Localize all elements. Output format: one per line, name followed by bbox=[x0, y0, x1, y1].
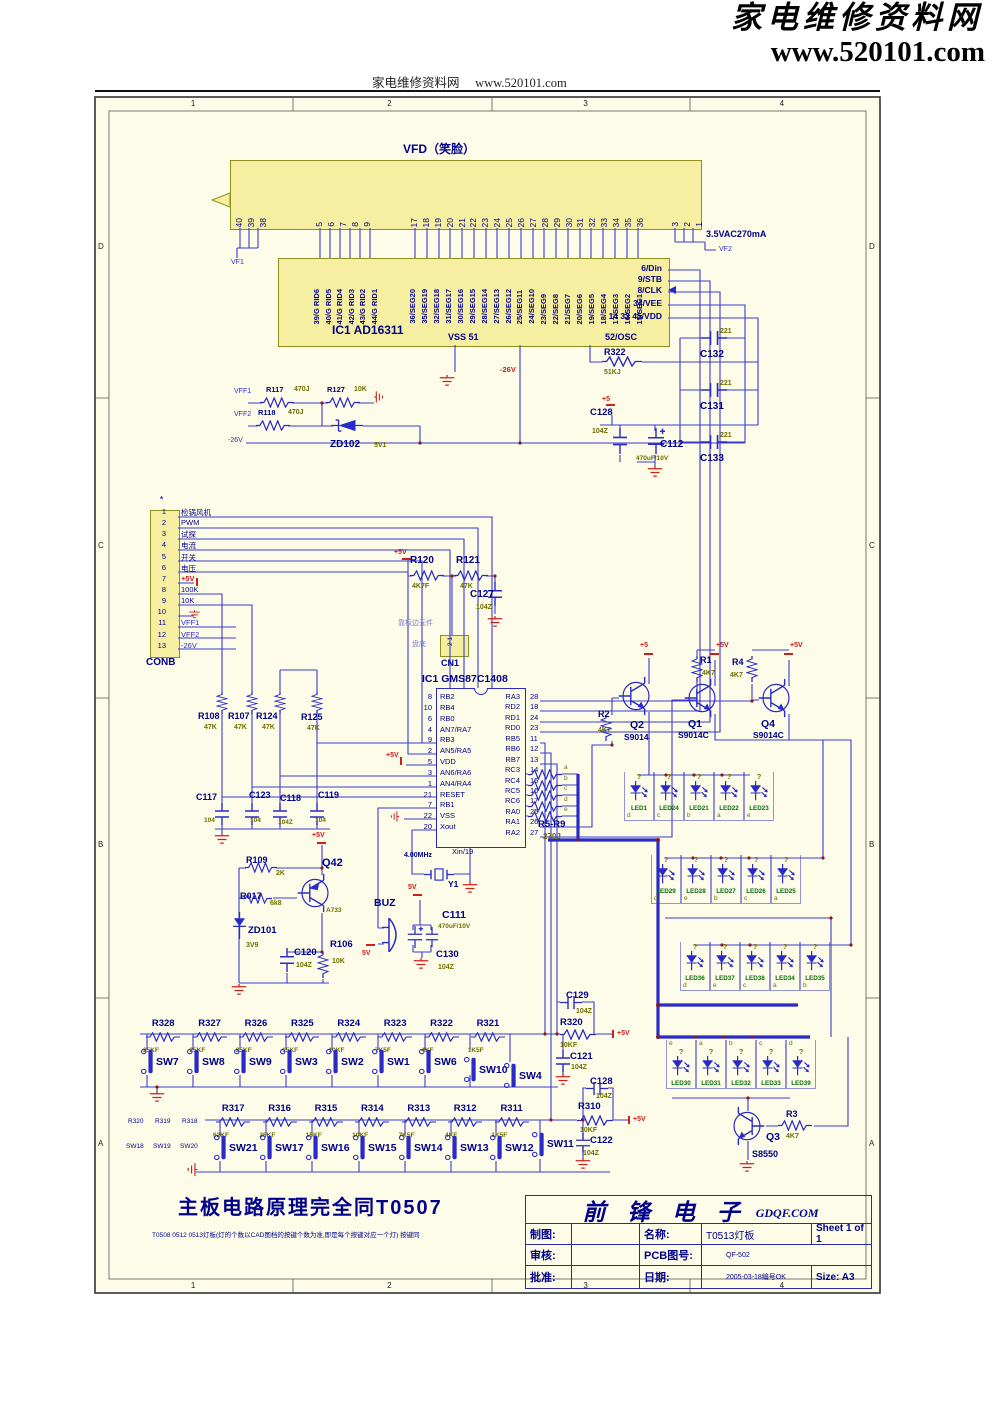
vfd-pin: 17 bbox=[409, 218, 419, 227]
mcu-pin-number: 13 bbox=[530, 755, 550, 765]
switch: SW12 bbox=[489, 1134, 534, 1161]
resistor-R5-R9-value: 270J bbox=[543, 833, 561, 841]
led-segment-letter: a bbox=[774, 895, 778, 902]
led-icon bbox=[774, 951, 796, 975]
mcu-pin-number: 3 bbox=[404, 768, 432, 779]
resistor-ref: R317 bbox=[210, 1103, 256, 1114]
led-cell: ?LED24c bbox=[654, 772, 684, 821]
switch: SW21 bbox=[213, 1134, 258, 1161]
footer-note-sub: T0508 0512 0513灯板(灯的个数以CAD图档的按键个数为准,即是每个… bbox=[152, 1233, 420, 1240]
resistor-ref: R314 bbox=[349, 1103, 395, 1114]
mcu-pin-name: RA2 bbox=[458, 828, 520, 838]
power-bar bbox=[317, 842, 326, 844]
led-cell: ?LED25a bbox=[771, 855, 801, 904]
zener-ZD101 bbox=[233, 912, 246, 939]
resistor-R4-ref: R4 bbox=[732, 658, 744, 667]
footer-note-main: 主板电路原理完全同T0507 bbox=[178, 1198, 443, 1218]
led-row-2: ?LED29d?LED28e?LED27b?LED26c?LED25a bbox=[651, 855, 801, 904]
led-icon bbox=[714, 951, 736, 975]
mcu-pin-number: 18 bbox=[530, 702, 550, 712]
mcu-pin-number: 21 bbox=[404, 790, 432, 801]
schematic-page: 家电维修资料网 www.520101.com 家电维修资料网 www.52010… bbox=[0, 0, 993, 1404]
vfd-pin: 29 bbox=[552, 218, 562, 227]
mcu-pin-number: 8 bbox=[404, 692, 432, 703]
resistor-icon bbox=[402, 1117, 436, 1127]
switch-label: SW1 bbox=[387, 1056, 410, 1068]
led-segment-letter: d bbox=[654, 895, 658, 902]
resistor-R3 bbox=[778, 1120, 812, 1131]
led-mark: ? bbox=[697, 772, 702, 781]
mcu-pin-number: 24 bbox=[530, 713, 550, 723]
mcu-xin-label: Xin/19 bbox=[452, 848, 473, 856]
resistor-R121 bbox=[454, 570, 488, 581]
switch: SW17 bbox=[259, 1134, 304, 1161]
mcu-name: IC1 GMS87C1408 bbox=[422, 674, 508, 685]
transistor-Q4-value: S9014C bbox=[753, 731, 784, 740]
segment-letter: e bbox=[564, 806, 568, 817]
led-icon bbox=[730, 1056, 752, 1080]
vfd-pin: 3 bbox=[670, 222, 680, 227]
resistor-R4-value: 4K7 bbox=[730, 672, 743, 679]
led-mark: ? bbox=[667, 772, 672, 781]
led-segment-letter: d bbox=[789, 1040, 793, 1047]
switch-icon bbox=[140, 1048, 155, 1075]
resistor-ref: R311 bbox=[488, 1103, 534, 1114]
led-mark: ? bbox=[784, 855, 789, 864]
switch-label: SW19 bbox=[153, 1143, 180, 1150]
vfd-pins-left: 403938 bbox=[234, 200, 268, 227]
net-label-vf2: VF2 bbox=[719, 246, 732, 253]
capacitor-C128 bbox=[612, 428, 628, 454]
vfd-pin: 21 bbox=[457, 218, 467, 227]
net-label-plus5v: +5V bbox=[716, 642, 729, 649]
resistor-R106-ref: R106 bbox=[330, 940, 353, 950]
transistor-Q3 bbox=[728, 1106, 766, 1146]
capacitor-C127-value: 104Z bbox=[476, 604, 492, 611]
resistor-R120 bbox=[410, 570, 444, 581]
led-cell: ?LED34a bbox=[770, 942, 800, 991]
capacitor-C119-ref: C119 bbox=[318, 791, 339, 800]
led-cell: ?LED22a bbox=[714, 772, 744, 821]
led-ref: LED36 bbox=[685, 975, 705, 982]
resistor-R108-ref: R108 bbox=[198, 712, 220, 721]
resistor-R118-ref: R118 bbox=[258, 409, 276, 417]
key-switch-row-2: SW21SW17SW16SW15SW14SW13SW12 bbox=[213, 1134, 553, 1174]
checked-by-label: 审核: bbox=[526, 1244, 571, 1265]
mcu-pin-name: RC3 bbox=[458, 765, 520, 775]
name-label: 名称: bbox=[639, 1223, 701, 1244]
company-name: 前 锋 电 子 bbox=[582, 1196, 747, 1223]
resistor-R127-value: 10K bbox=[354, 386, 367, 393]
capacitor-C127-ref: C127 bbox=[470, 590, 494, 600]
net-label-5v: 5V bbox=[362, 950, 371, 957]
led-ref: LED25 bbox=[776, 888, 796, 895]
vfd-pin: 34 bbox=[611, 218, 621, 227]
conb-net-label: 试探 bbox=[181, 529, 211, 540]
mcu-pin-name: RA0 bbox=[458, 807, 520, 817]
led-ref: LED38 bbox=[745, 975, 765, 982]
ground-icon bbox=[148, 1091, 166, 1103]
led-segment-letter: b bbox=[687, 812, 691, 819]
led-segment-letter: e bbox=[684, 895, 688, 902]
resistor-R017 bbox=[242, 893, 272, 904]
led-cell: ?LED21b bbox=[684, 772, 714, 821]
crystal-Y1-value: 4.00MHz bbox=[404, 852, 432, 859]
capacitor-C122-ref: C122 bbox=[590, 1136, 613, 1146]
segment-letter: b bbox=[564, 775, 568, 786]
led-cell: ?LED33c bbox=[756, 1040, 786, 1089]
switch-label: SW3 bbox=[295, 1056, 318, 1068]
capacitor-C121-value: 104Z bbox=[571, 1064, 587, 1071]
ground-icon bbox=[188, 610, 201, 619]
conb-pin-number: 13 bbox=[150, 641, 166, 652]
conb-pin-number: 9 bbox=[150, 596, 166, 607]
power-bar bbox=[784, 653, 793, 655]
led-icon bbox=[688, 781, 710, 805]
switch-label: SW15 bbox=[368, 1142, 397, 1154]
switch: SW16 bbox=[305, 1134, 350, 1161]
switch: SW4 bbox=[503, 1062, 542, 1089]
led-segment-letter: b bbox=[714, 895, 718, 902]
ic1-pin-label: 24/SEG10 bbox=[527, 289, 536, 324]
resistor-icon bbox=[239, 1032, 273, 1042]
led-mark: ? bbox=[783, 942, 788, 951]
switch-icon bbox=[398, 1134, 413, 1161]
ic1-pin-label: 30/SEG16 bbox=[456, 289, 465, 324]
ic1-pin-stb: 9/STB bbox=[560, 275, 662, 284]
crystal-Y1-ref: Y1 bbox=[448, 880, 458, 889]
transistor-Q3-value: S8550 bbox=[752, 1150, 778, 1159]
led-cell: ?LED1d bbox=[624, 772, 654, 821]
segment-letter: d bbox=[564, 796, 568, 807]
conb-pin-number: 8 bbox=[150, 585, 166, 596]
resistor-ref: R313 bbox=[396, 1103, 442, 1114]
ic1-pin-label: 27/SEG13 bbox=[492, 289, 501, 324]
led-icon bbox=[760, 1056, 782, 1080]
company-url: GDQF.COM bbox=[756, 1206, 819, 1221]
resistor-R106-value: 10K bbox=[332, 958, 345, 965]
led-cell: ?LED27b bbox=[711, 855, 741, 904]
resistor-icon bbox=[216, 1117, 250, 1127]
resistor-icon bbox=[425, 1032, 459, 1042]
ic1-pin-vss: VSS 51 bbox=[448, 333, 479, 342]
capacitor-C131-ref: C131 bbox=[700, 402, 724, 412]
led-row-1: ?LED1d?LED24c?LED21b?LED22a?LED23e bbox=[624, 772, 774, 821]
resistor-R5-R9-ref: R5-R9 bbox=[538, 820, 565, 830]
ic1-pin-label: 32/SEG18 bbox=[432, 289, 441, 324]
capacitor-C112-value: 470uF/10V bbox=[636, 456, 668, 463]
cn1-pins: 2 1 bbox=[448, 637, 455, 646]
ic1-grid-pin-labels: 39/G RID640/G RID541/G RID442/G RID343/G… bbox=[312, 262, 379, 324]
vfd-pin: 23 bbox=[480, 218, 490, 227]
resistor-ref: R315 bbox=[303, 1103, 349, 1114]
capacitor-C130-value: 104Z bbox=[438, 964, 454, 971]
resistor-R125-value: 47K bbox=[307, 725, 320, 732]
transistor-Q42-value: A733 bbox=[326, 908, 342, 915]
led-cell: ?LED37e bbox=[710, 942, 740, 991]
mcu-right-pin-names: RA3RD2RD1RD0RB5RB6RB7RC3RC4RC5RC6RA0RA1R… bbox=[458, 692, 520, 838]
led-mark: ? bbox=[727, 772, 732, 781]
capacitor-C129-value: 104Z bbox=[576, 1008, 592, 1015]
capacitor-C123-value: 104 bbox=[250, 818, 261, 825]
capacitor-C119-value: 104 bbox=[315, 818, 326, 825]
led-ref: LED23 bbox=[749, 805, 769, 812]
switch: SW13 bbox=[444, 1134, 489, 1161]
vfd-pin: 2 bbox=[682, 222, 692, 227]
capacitor-C128-ref: C128 bbox=[590, 408, 613, 418]
resistor-R117 bbox=[260, 397, 294, 408]
mcu-pin-number: 23 bbox=[530, 723, 550, 733]
zener-ZD102-ref: ZD102 bbox=[330, 440, 360, 450]
ground-icon bbox=[554, 1074, 572, 1086]
switch-icon bbox=[233, 1048, 248, 1075]
conb-net-label: 电流 bbox=[181, 540, 211, 551]
mcu-pin-name: RB7 bbox=[458, 755, 520, 765]
capacitor-C117-ref: C117 bbox=[196, 793, 217, 802]
resistor-ref: R327 bbox=[186, 1018, 232, 1029]
resistor-icon bbox=[495, 1117, 529, 1127]
switch-label: SW16 bbox=[321, 1142, 350, 1154]
resistor-R2-value: 4K7 bbox=[598, 727, 611, 734]
led-segment-letter: e bbox=[669, 1040, 673, 1047]
net-label-vf1: VF1 bbox=[231, 259, 244, 266]
resistor-ref: R319 bbox=[155, 1118, 182, 1125]
net-label-plus5v: +5V bbox=[617, 1030, 630, 1037]
drawn-by-label: 制图: bbox=[526, 1223, 571, 1244]
led-mark: ? bbox=[769, 1047, 774, 1056]
checked-by-value bbox=[571, 1244, 639, 1265]
led-icon bbox=[685, 864, 707, 888]
capacitor-C128b-value: 104Z bbox=[596, 1093, 612, 1100]
resistor-icon bbox=[378, 1032, 412, 1042]
switch: SW10 bbox=[463, 1056, 508, 1083]
power-bar bbox=[644, 653, 653, 655]
ic1-pin-vee: 34/VEE bbox=[560, 299, 662, 308]
led-ref: LED24 bbox=[659, 805, 679, 812]
resistor-ref: R323 bbox=[372, 1018, 418, 1029]
ground-icon bbox=[213, 833, 231, 845]
led-mark: ? bbox=[723, 942, 728, 951]
mcu-pin-number: 1 bbox=[404, 779, 432, 790]
switch-label: SW21 bbox=[229, 1142, 258, 1154]
conb-net-label: 开关 bbox=[181, 552, 211, 563]
transistor-Q42-ref: Q42 bbox=[322, 858, 343, 869]
resistor-ref: R316 bbox=[256, 1103, 302, 1114]
switch: SW7 bbox=[140, 1048, 179, 1075]
vfd-pin: 35 bbox=[623, 218, 633, 227]
switch-icon bbox=[503, 1062, 518, 1089]
vfd-pin: 40 bbox=[234, 218, 244, 227]
capacitor-C128-value: 104Z bbox=[592, 428, 608, 435]
switch-icon bbox=[531, 1131, 546, 1158]
led-ref: LED39 bbox=[791, 1080, 811, 1087]
power-bar bbox=[606, 404, 615, 406]
resistor-R7 bbox=[528, 790, 562, 801]
switch: SW3 bbox=[279, 1048, 318, 1075]
led-icon bbox=[744, 951, 766, 975]
led-mark: ? bbox=[739, 1047, 744, 1056]
vfd-pin: 18 bbox=[421, 218, 431, 227]
ic1-pin-label: 40/G RID5 bbox=[324, 289, 333, 324]
ground-icon bbox=[574, 1158, 592, 1170]
led-ref: LED28 bbox=[686, 888, 706, 895]
conb-pin-number: 6 bbox=[150, 563, 166, 574]
led-segment-letter: e bbox=[713, 982, 717, 989]
power-bar bbox=[400, 757, 402, 765]
net-label-plus5: +5 bbox=[602, 396, 610, 403]
led-segment-letter: d bbox=[683, 982, 687, 989]
resistor-ref: R318 bbox=[182, 1118, 209, 1125]
ic1-pin-label: 43/G RID2 bbox=[358, 289, 367, 324]
led-ref: LED29 bbox=[656, 888, 676, 895]
capacitor-C118-ref: C118 bbox=[280, 794, 301, 803]
resistor-ref: R326 bbox=[233, 1018, 279, 1029]
switch-label: SW14 bbox=[414, 1142, 443, 1154]
vfd-pins-seg: 1718192021222324252627282930313233343536 bbox=[409, 200, 645, 227]
mcu-pin-number: 22 bbox=[404, 811, 432, 822]
resistor-R3-ref: R3 bbox=[786, 1110, 798, 1119]
resistor-R106 bbox=[317, 952, 329, 978]
switch-icon bbox=[213, 1134, 228, 1161]
switch-label: SW20 bbox=[180, 1143, 207, 1150]
capacitor-C121 bbox=[555, 1050, 571, 1072]
zener-ZD102 bbox=[331, 419, 363, 432]
capacitor-C120-ref: C120 bbox=[294, 948, 317, 958]
mcu-pin-number: 4 bbox=[404, 725, 432, 736]
switch: SW8 bbox=[186, 1048, 225, 1075]
power-bar bbox=[366, 944, 375, 946]
switch-label: SW2 bbox=[341, 1056, 364, 1068]
led-cell: ?LED31a bbox=[696, 1040, 726, 1089]
resistor-icon bbox=[471, 1032, 505, 1042]
ground-icon bbox=[738, 1161, 756, 1173]
led-cell: ?LED30e bbox=[666, 1040, 696, 1089]
resistor-R120-ref: R120 bbox=[410, 556, 434, 566]
pcb-number-value: QF-502 bbox=[701, 1244, 871, 1265]
switch: SW9 bbox=[233, 1048, 272, 1075]
led-mark: ? bbox=[799, 1047, 804, 1056]
vfd-pin: 22 bbox=[468, 218, 478, 227]
approved-by-label: 批准: bbox=[526, 1265, 571, 1288]
switch-icon bbox=[371, 1048, 386, 1075]
mcu-pin-number: 9 bbox=[404, 735, 432, 746]
led-cell: ?LED28e bbox=[681, 855, 711, 904]
pcb-number-label: PCB图号: bbox=[639, 1244, 701, 1265]
ground-icon bbox=[438, 375, 456, 387]
mcu-pin-name: RC4 bbox=[458, 776, 520, 786]
switch-label: SW13 bbox=[460, 1142, 489, 1154]
switch: SW14 bbox=[398, 1134, 443, 1161]
transistor-Q1 bbox=[683, 678, 721, 718]
vfd-pins-right: 321 bbox=[670, 200, 704, 227]
resistor-R109-value: 2K bbox=[276, 870, 285, 877]
net-label-plus5v: +5V bbox=[312, 832, 325, 839]
company-title: 前 锋 电 子 GDQF.COM bbox=[526, 1196, 871, 1223]
buzzer bbox=[382, 918, 402, 952]
led-cell: ?LED36d bbox=[680, 942, 710, 991]
ic1-pin-label: 35/SEG19 bbox=[420, 289, 429, 324]
mcu-pin-number: 7 bbox=[404, 800, 432, 811]
led-mark: ? bbox=[693, 942, 698, 951]
date-value: 2005-03-18编号OK bbox=[701, 1265, 811, 1288]
segment-letter: c bbox=[564, 785, 568, 796]
led-cell: ?LED29d bbox=[651, 855, 681, 904]
vfd-pin: 9 bbox=[362, 222, 372, 227]
vfd-pin: 5 bbox=[314, 222, 324, 227]
switch-icon bbox=[279, 1048, 294, 1075]
capacitor-C130 bbox=[425, 927, 439, 947]
cn1-ref: CN1 bbox=[441, 659, 459, 668]
led-cell: ?LED38c bbox=[740, 942, 770, 991]
led-segment-letter: d bbox=[627, 812, 631, 819]
resistor-R320 bbox=[560, 1029, 596, 1040]
resistor-R1-value: 4K7 bbox=[702, 670, 715, 677]
ic1-pin-label: 29/SEG15 bbox=[468, 289, 477, 324]
ground-icon bbox=[390, 810, 399, 823]
conb-net-label: -26V bbox=[181, 641, 211, 652]
capacitor-C121-ref: C121 bbox=[570, 1052, 593, 1062]
led-segment-letter: e bbox=[747, 812, 751, 819]
vfd-pin: 32 bbox=[587, 218, 597, 227]
mcu-pin-number: 28 bbox=[530, 692, 550, 702]
resistor-R322 bbox=[602, 356, 642, 367]
resistor-R320-value: 10KF bbox=[560, 1042, 577, 1049]
led-segment-letter: b bbox=[729, 1040, 733, 1047]
resistor-icon bbox=[309, 1117, 343, 1127]
capacitor-C112-ref: C112 bbox=[660, 440, 683, 450]
resistor-icon bbox=[285, 1032, 319, 1042]
led-icon bbox=[628, 781, 650, 805]
capacitor-C130-ref: C130 bbox=[436, 950, 459, 960]
conb-star: * bbox=[160, 496, 163, 504]
transistor-Q1-value: S9014C bbox=[678, 731, 709, 740]
led-ref: LED33 bbox=[761, 1080, 781, 1087]
switch-icon bbox=[186, 1048, 201, 1075]
led-mark: ? bbox=[679, 1047, 684, 1056]
ic1-pin-label: 28/SEG14 bbox=[480, 289, 489, 324]
ground-icon bbox=[461, 882, 479, 894]
capacitor-C117 bbox=[214, 803, 230, 825]
led-cell: ?LED23e bbox=[744, 772, 774, 821]
resistor-icon bbox=[355, 1117, 389, 1127]
ic1-pin-label: 39/G RID6 bbox=[312, 289, 321, 324]
switch-icon bbox=[418, 1048, 433, 1075]
led-mark: ? bbox=[694, 855, 699, 864]
power-bar bbox=[628, 1116, 630, 1124]
resistor-R127 bbox=[326, 397, 360, 408]
mcu-pin-name: RD0 bbox=[458, 723, 520, 733]
key-switch-row-1: SW7SW8SW9SW3SW2SW1SW6SW10SW4 bbox=[140, 1048, 560, 1094]
vfd-pin: 7 bbox=[338, 222, 348, 227]
resistor-R322-value: 51KJ bbox=[604, 369, 621, 376]
led-icon bbox=[700, 1056, 722, 1080]
led-ref: LED26 bbox=[746, 888, 766, 895]
switch-icon bbox=[489, 1134, 504, 1161]
led-icon bbox=[790, 1056, 812, 1080]
title-block: 前 锋 电 子 GDQF.COM 制图: 名称: T0513灯板 Sheet 1… bbox=[525, 1195, 872, 1289]
buzzer-ref: BUZ bbox=[374, 898, 396, 909]
capacitor-C120-value: 104Z bbox=[296, 962, 312, 969]
side-resistor-refs: R320R319R318 bbox=[128, 1118, 209, 1125]
capacitor-C111-ref: C111 bbox=[442, 910, 466, 921]
vfd-pins-grid: 56789 bbox=[314, 200, 372, 227]
ic1-pin-clk: 8/CLK bbox=[560, 286, 662, 295]
resistor-ref: R322 bbox=[418, 1018, 464, 1029]
mcu-pin-name: RA3 bbox=[458, 692, 520, 702]
ground-icon bbox=[486, 616, 504, 628]
conb-net-label: 10K bbox=[181, 596, 211, 607]
switch-label: SW8 bbox=[202, 1056, 225, 1068]
